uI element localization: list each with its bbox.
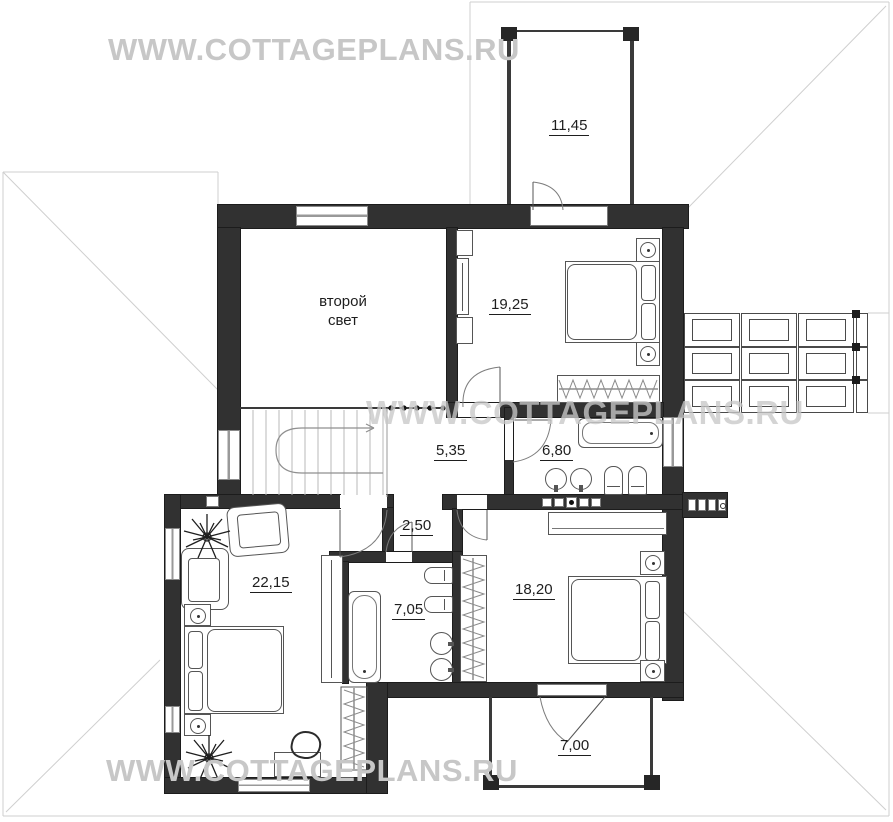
- watermark-middle: WWW.COTTAGEPLANS.RU: [366, 394, 804, 432]
- room-label-corridor: 2,50: [400, 517, 433, 536]
- closet-hanger-symbols: [344, 380, 658, 769]
- room-label-bedroom-lower: 18,20: [513, 581, 555, 600]
- floor-plan-canvas: WWW.COTTAGEPLANS.RU WWW.COTTAGEPLANS.RU …: [0, 0, 893, 822]
- room-label-hall: 5,35: [434, 442, 467, 461]
- room-label-second-light: второй свет: [312, 293, 374, 331]
- watermark-top: WWW.COTTAGEPLANS.RU: [108, 32, 520, 68]
- room-label-bathroom-master: 7,05: [392, 601, 425, 620]
- room-label-balcony-top: 11,45: [549, 117, 589, 136]
- room-label-balcony-bottom: 7,00: [558, 737, 591, 756]
- plant: [184, 514, 230, 558]
- stairs-treads: [253, 410, 383, 495]
- room-label-bedroom-master: 22,15: [250, 574, 292, 593]
- room-label-bathroom-main: 6,80: [540, 442, 573, 461]
- room-label-bedroom-top: 19,25: [489, 296, 531, 315]
- watermark-bottom: WWW.COTTAGEPLANS.RU: [106, 753, 518, 789]
